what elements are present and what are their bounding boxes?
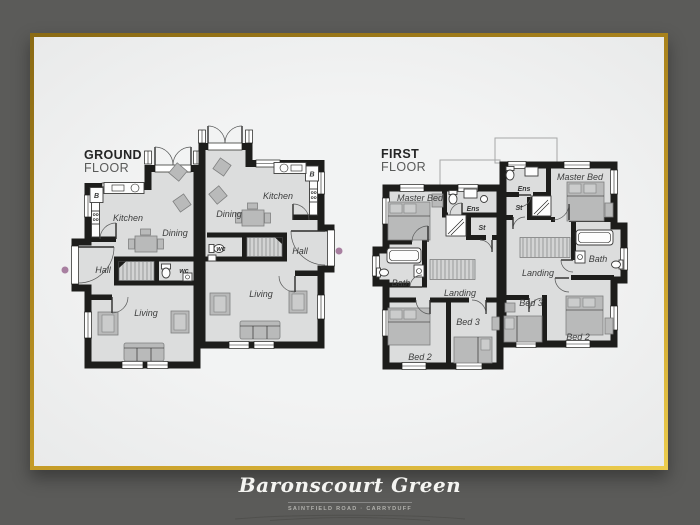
room-label-hall: Hall [292,246,309,256]
room-label-bed3: Bed 3 [519,298,543,308]
stairs [430,260,475,280]
stairs [520,238,570,258]
first-floor-plan: FIRST FLOOR [370,110,640,378]
ground-floor-title: GROUND [84,148,142,162]
stairs [119,262,154,281]
room-label-bed2: Bed 2 [408,352,432,362]
room-label-kitchen: Kitchen [113,213,143,223]
room-label-wc: wc [179,268,188,275]
room-label-kitchen: Kitchen [263,191,293,201]
first-floor-subtitle: FLOOR [381,160,426,174]
store-cupboard [446,215,466,236]
first-right-house: Ens Master Bed St Landing Bath Bed 3 Bed… [503,162,628,348]
poster-background: GROUND FLOOR [0,0,700,525]
entrance-marker-dot [336,248,343,255]
room-label-bed3: Bed 3 [456,317,480,327]
french-doors [155,147,191,165]
stairs [247,238,282,257]
room-label-boiler: B [309,172,314,179]
room-label-landing: Landing [522,268,554,278]
store-cupboard [532,196,551,216]
room-label-wc: wc [216,246,225,253]
development-address: SAINTFIELD ROAD · CARRYDUFF [288,502,412,512]
french-doors [208,126,242,143]
room-label-bath: Bath [392,278,411,288]
first-floor-title: FIRST [381,147,419,161]
roof-outline [440,160,500,186]
room-label-dining: Dining [216,209,242,219]
roof-outline [495,138,557,163]
room-label-boiler: B [94,193,99,200]
first-left-house: Master Bed Ens St Bath Landing Bed 3 Bed… [373,185,501,370]
room-label-landing: Landing [444,288,476,298]
room-label-master-bed: Master Bed [397,193,444,203]
ground-right-house: Kitchen Dining Hall Living wc B [199,126,335,349]
room-label-living: Living [249,289,273,299]
room-label-hall: Hall [95,265,112,275]
entrance-marker-dot [62,267,69,274]
room-label-ens: Ens [467,206,480,213]
flourish-ornament [230,513,470,523]
room-label-master-bed: Master Bed [557,172,604,182]
room-label-dining: Dining [162,228,188,238]
room-label-bed2: Bed 2 [566,332,590,342]
room-label-bath: Bath [589,254,608,264]
room-label-st: St [479,225,487,232]
development-title: Baronscourt Green [0,473,700,497]
ground-left-house: Kitchen Dining Hall Living wc B [72,147,201,369]
room-label-ens: Ens [518,186,531,193]
ground-floor-plan: GROUND FLOOR [62,115,342,377]
footer: Baronscourt Green SAINTFIELD ROAD · CARR… [0,473,700,515]
room-label-st: St [516,205,524,212]
room-label-living: Living [134,308,158,318]
ground-floor-subtitle: FLOOR [84,161,129,175]
